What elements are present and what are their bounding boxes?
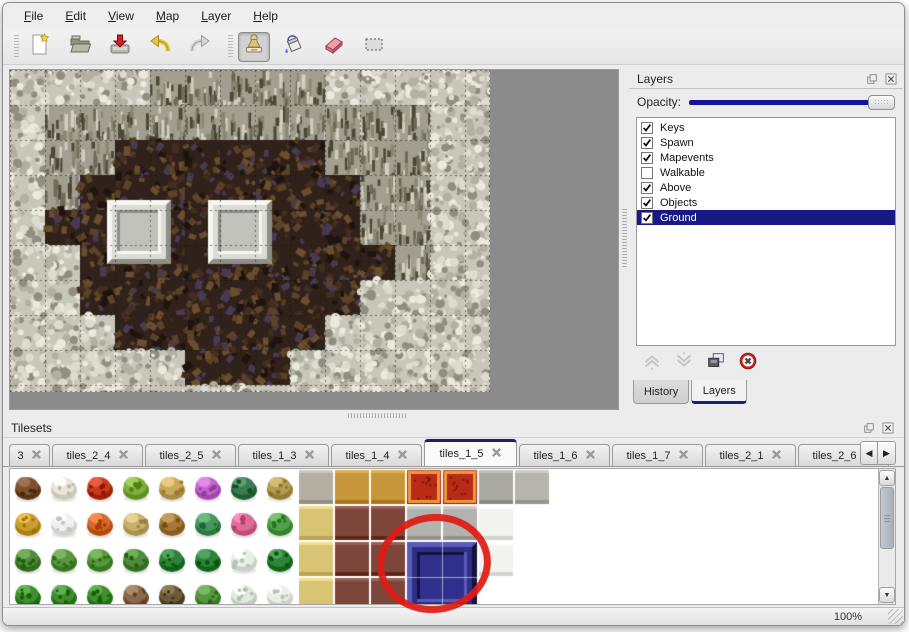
tileset-tab-tiles_2_5[interactable]: tiles_2_5 bbox=[145, 444, 236, 466]
opacity-slider[interactable] bbox=[689, 94, 895, 110]
status-bar: 100% bbox=[3, 607, 904, 625]
menu-bar: FileEditViewMapLayerHelp bbox=[3, 3, 904, 29]
tab-close-icon[interactable] bbox=[118, 449, 129, 463]
menu-edit[interactable]: Edit bbox=[56, 6, 95, 26]
tab-scrollers: ◀ ▶ bbox=[860, 441, 896, 465]
tab-scroll-left-icon[interactable]: ◀ bbox=[860, 441, 878, 465]
toolbar-group-tools bbox=[238, 32, 390, 62]
toolbar-group-file bbox=[24, 32, 216, 62]
menu-map[interactable]: Map bbox=[147, 6, 188, 26]
tileset-tab-tiles_2_1[interactable]: tiles_2_1 bbox=[705, 444, 796, 466]
layer-label: Mapevents bbox=[660, 152, 714, 164]
map-viewport[interactable] bbox=[9, 69, 619, 410]
tilesets-titlebar: Tilesets bbox=[3, 418, 904, 438]
layer-label: Walkable bbox=[660, 167, 705, 179]
layer-row-walkable[interactable]: Walkable bbox=[637, 165, 895, 180]
tileset-tab-label: tiles_1_3 bbox=[252, 450, 296, 462]
resize-grip[interactable] bbox=[888, 609, 903, 624]
move-up-icon bbox=[641, 350, 663, 377]
tileset-tab-tiles_1_3[interactable]: tiles_1_3 bbox=[238, 444, 329, 466]
tab-close-icon[interactable] bbox=[678, 449, 689, 463]
tileset-tab-tiles_1_4[interactable]: tiles_1_4 bbox=[331, 444, 422, 466]
new-file-icon bbox=[28, 32, 52, 61]
stamp-tool-button[interactable] bbox=[238, 32, 270, 62]
tab-close-icon[interactable] bbox=[397, 449, 408, 463]
eraser-tool-button[interactable] bbox=[318, 32, 350, 62]
layers-panel: Layers Opacity: KeysSpawnMapeventsWalkab… bbox=[629, 69, 903, 413]
tileset-tab-tiles_1_6[interactable]: tiles_1_6 bbox=[519, 444, 610, 466]
opacity-row: Opacity: bbox=[629, 89, 903, 115]
layer-list: KeysSpawnMapeventsWalkableAboveObjectsGr… bbox=[636, 117, 896, 346]
tileset-tab-label: tiles_2_6 bbox=[812, 450, 856, 462]
move-up-layer-button[interactable] bbox=[641, 352, 663, 374]
tileset-tab-label: tiles_1_7 bbox=[626, 450, 670, 462]
select-tool-button[interactable] bbox=[358, 32, 390, 62]
layer-row-above[interactable]: Above bbox=[637, 180, 895, 195]
open-file-button[interactable] bbox=[64, 32, 96, 62]
opacity-slider-track[interactable] bbox=[689, 100, 893, 105]
menu-view[interactable]: View bbox=[99, 6, 143, 26]
menu-help[interactable]: Help bbox=[244, 6, 287, 26]
undo-icon bbox=[148, 32, 172, 61]
toolbar bbox=[3, 29, 904, 65]
map-canvas[interactable] bbox=[10, 70, 490, 392]
stamp-tool-icon bbox=[242, 32, 266, 61]
vertical-splitter[interactable] bbox=[620, 69, 629, 410]
tilesets-title: Tilesets bbox=[11, 421, 52, 435]
tileset-tab-3[interactable]: 3 bbox=[9, 444, 50, 466]
tileset-tab-label: tiles_2_4 bbox=[66, 450, 110, 462]
tileset-tab-label: tiles_2_5 bbox=[159, 450, 203, 462]
panel-tabs: HistoryLayers bbox=[629, 380, 903, 404]
new-file-button[interactable] bbox=[24, 32, 56, 62]
layer-row-spawn[interactable]: Spawn bbox=[637, 135, 895, 150]
toolbar-gripper[interactable] bbox=[228, 35, 233, 59]
layer-label: Objects bbox=[660, 197, 697, 209]
tab-close-icon[interactable] bbox=[585, 449, 596, 463]
tab-close-icon[interactable] bbox=[304, 449, 315, 463]
save-file-icon bbox=[108, 32, 132, 61]
layers-panel-title: Layers bbox=[637, 72, 673, 86]
float-icon[interactable] bbox=[864, 71, 880, 87]
tileset-tab-tiles_1_5[interactable]: tiles_1_5 bbox=[424, 439, 517, 466]
scroll-down-icon[interactable]: ▼ bbox=[879, 587, 895, 603]
layer-label: Ground bbox=[660, 212, 697, 224]
tileset-tab-label: tiles_1_6 bbox=[533, 450, 577, 462]
tab-close-icon[interactable] bbox=[31, 449, 42, 463]
menu-file[interactable]: File bbox=[15, 6, 52, 26]
float-icon[interactable] bbox=[861, 420, 877, 436]
tileset-tab-tiles_1_7[interactable]: tiles_1_7 bbox=[612, 444, 703, 466]
toolbar-gripper[interactable] bbox=[14, 35, 19, 59]
redo-button[interactable] bbox=[184, 32, 216, 62]
undo-button[interactable] bbox=[144, 32, 176, 62]
layer-row-ground[interactable]: Ground bbox=[637, 210, 895, 225]
tileset-tab-label: 3 bbox=[17, 450, 23, 462]
layer-label: Above bbox=[660, 182, 691, 194]
layer-checkbox[interactable] bbox=[641, 182, 653, 194]
layer-row-keys[interactable]: Keys bbox=[637, 120, 895, 135]
duplicate-layer-button[interactable] bbox=[705, 352, 727, 374]
fill-tool-icon bbox=[282, 32, 306, 61]
tileset-tab-label: tiles_1_4 bbox=[345, 450, 389, 462]
zoom-level: 100% bbox=[834, 611, 862, 623]
layer-row-objects[interactable]: Objects bbox=[637, 195, 895, 210]
scroll-up-icon[interactable]: ▲ bbox=[879, 470, 895, 486]
eraser-tool-icon bbox=[322, 32, 346, 61]
duplicate-icon bbox=[705, 350, 727, 377]
opacity-label: Opacity: bbox=[637, 95, 681, 109]
tab-history[interactable]: History bbox=[633, 380, 689, 404]
delete-layer-button[interactable] bbox=[737, 352, 759, 374]
layer-label: Keys bbox=[660, 122, 684, 134]
tab-scroll-right-icon[interactable]: ▶ bbox=[878, 441, 896, 465]
layer-checkbox[interactable] bbox=[641, 167, 653, 179]
redo-icon bbox=[188, 32, 212, 61]
close-icon[interactable] bbox=[880, 420, 896, 436]
screenshot-root: FileEditViewMapLayerHelp Layers bbox=[0, 0, 909, 632]
opacity-slider-thumb[interactable] bbox=[868, 95, 895, 110]
tileset-tab-tiles_2_4[interactable]: tiles_2_4 bbox=[52, 444, 143, 466]
move-down-layer-button[interactable] bbox=[673, 352, 695, 374]
save-file-button[interactable] bbox=[104, 32, 136, 62]
tab-close-icon[interactable] bbox=[771, 449, 782, 463]
tileset-tab-label: tiles_2_1 bbox=[719, 450, 763, 462]
open-file-icon bbox=[68, 32, 92, 61]
tab-close-icon[interactable] bbox=[491, 447, 502, 461]
layer-checkbox[interactable] bbox=[641, 197, 653, 209]
splitter-handle[interactable] bbox=[622, 209, 627, 267]
tab-close-icon[interactable] bbox=[211, 449, 222, 463]
layer-checkbox[interactable] bbox=[641, 122, 653, 134]
delete-icon bbox=[737, 350, 759, 377]
scrollbar-thumb[interactable] bbox=[880, 487, 894, 549]
layer-checkbox[interactable] bbox=[641, 137, 653, 149]
tileset-scrollbar[interactable]: ▲ ▼ bbox=[878, 469, 895, 604]
select-tool-icon bbox=[362, 32, 386, 61]
layer-label: Spawn bbox=[660, 137, 694, 149]
layer-checkbox[interactable] bbox=[641, 212, 653, 224]
tab-layers[interactable]: Layers bbox=[691, 380, 747, 404]
menu-layer[interactable]: Layer bbox=[192, 6, 240, 26]
layer-checkbox[interactable] bbox=[641, 152, 653, 164]
layers-panel-titlebar: Layers bbox=[629, 69, 903, 89]
tileset-tab-bar: 3tiles_2_4tiles_2_5tiles_1_3tiles_1_4til… bbox=[3, 438, 904, 467]
tileset-tab-label: tiles_1_5 bbox=[439, 448, 483, 460]
layer-row-mapevents[interactable]: Mapevents bbox=[637, 150, 895, 165]
move-down-icon bbox=[673, 350, 695, 377]
layer-buttons bbox=[629, 346, 903, 380]
fill-tool-button[interactable] bbox=[278, 32, 310, 62]
close-icon[interactable] bbox=[883, 71, 899, 87]
